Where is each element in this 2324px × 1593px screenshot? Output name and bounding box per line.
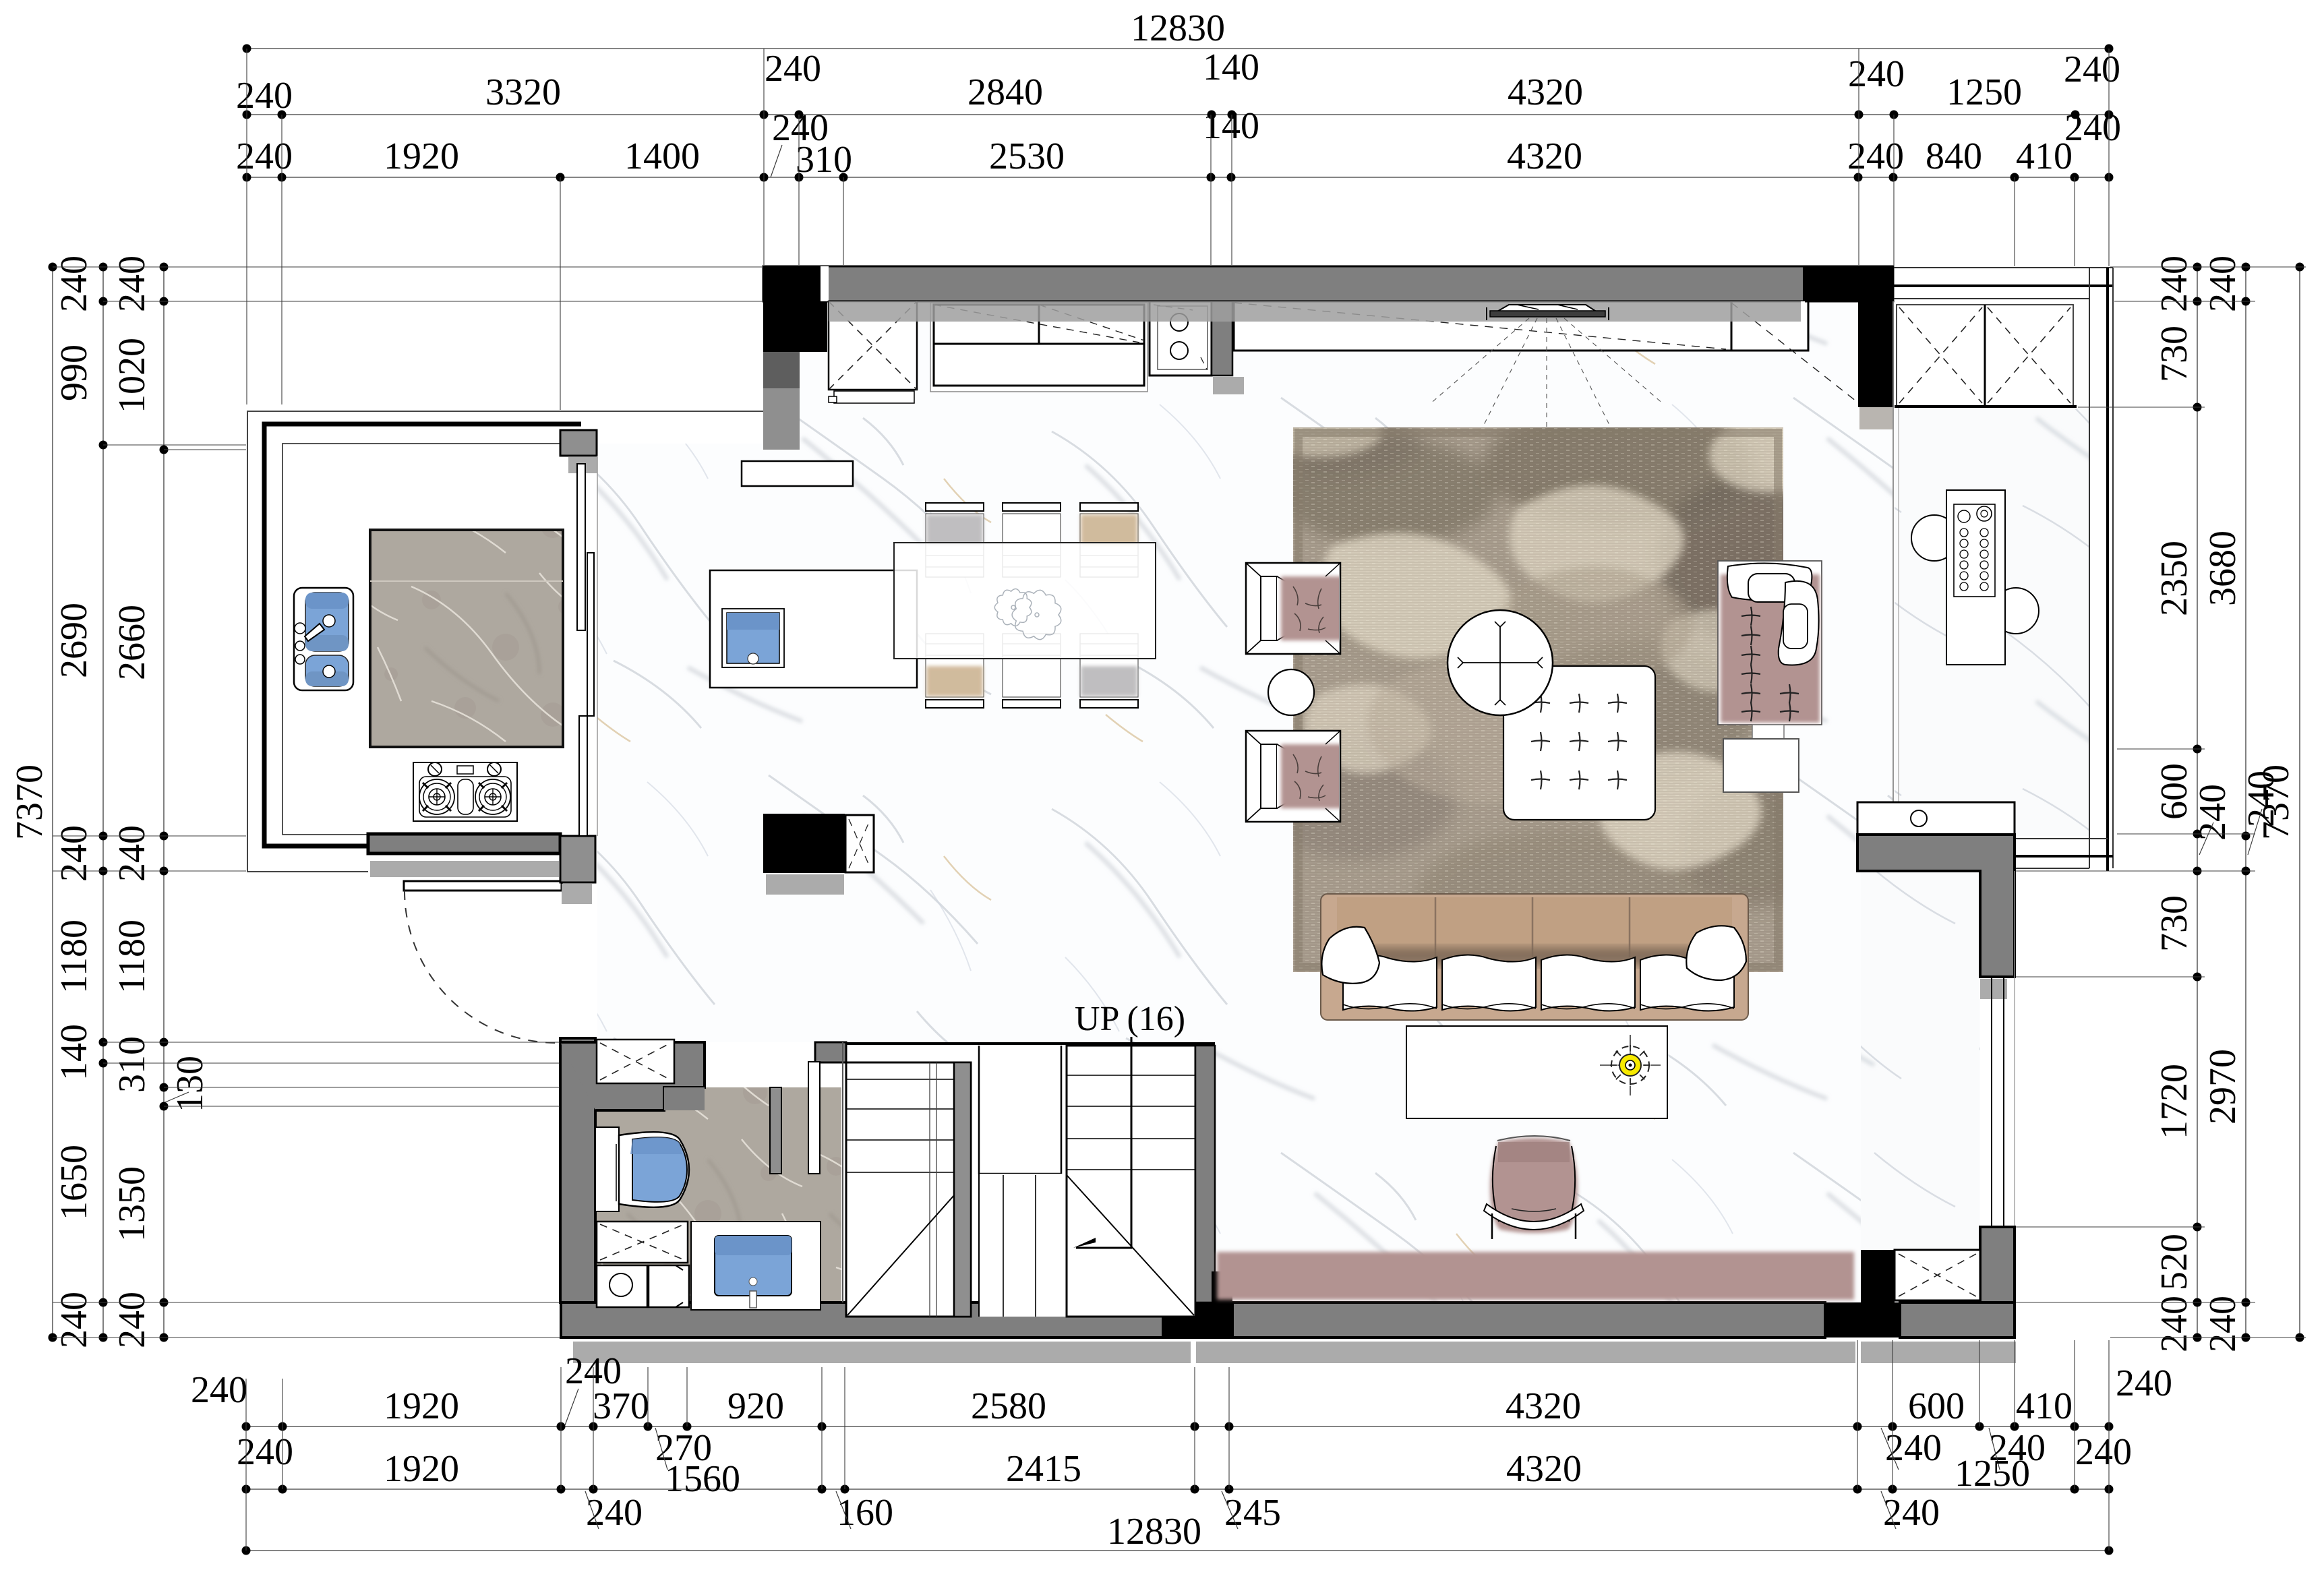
svg-text:240: 240: [2153, 1296, 2195, 1352]
svg-text:240: 240: [111, 825, 153, 882]
svg-text:240: 240: [53, 825, 95, 882]
svg-text:240: 240: [2064, 49, 2120, 90]
svg-text:310: 310: [111, 1036, 153, 1093]
svg-text:7370: 7370: [9, 764, 51, 840]
svg-text:990: 990: [53, 344, 95, 401]
svg-text:240: 240: [53, 1292, 95, 1348]
svg-text:1920: 1920: [384, 136, 459, 177]
svg-text:240: 240: [2075, 1431, 2132, 1473]
svg-text:3680: 3680: [2202, 531, 2244, 606]
svg-text:730: 730: [2153, 895, 2195, 952]
svg-text:240: 240: [111, 1292, 153, 1348]
svg-text:1250: 1250: [1955, 1453, 2030, 1495]
svg-text:840: 840: [1926, 136, 1982, 177]
svg-text:240: 240: [2202, 256, 2244, 312]
svg-text:140: 140: [1203, 47, 1259, 88]
svg-text:240: 240: [1883, 1492, 1940, 1534]
svg-text:3320: 3320: [485, 71, 561, 113]
svg-text:600: 600: [1908, 1385, 1965, 1427]
svg-text:160: 160: [837, 1492, 893, 1534]
svg-text:12830: 12830: [1131, 7, 1225, 49]
svg-text:1250: 1250: [1946, 71, 2022, 113]
svg-text:240: 240: [191, 1369, 247, 1411]
svg-text:730: 730: [2153, 326, 2195, 382]
svg-text:2350: 2350: [2153, 541, 2195, 616]
svg-text:240: 240: [53, 256, 95, 312]
svg-text:245: 245: [1224, 1492, 1281, 1534]
svg-text:4320: 4320: [1508, 71, 1583, 113]
svg-text:240: 240: [2153, 256, 2195, 312]
svg-text:240: 240: [2116, 1362, 2172, 1404]
svg-text:2690: 2690: [53, 603, 95, 678]
svg-text:240: 240: [1847, 136, 1904, 177]
svg-text:240: 240: [2202, 1296, 2244, 1352]
svg-text:1560: 1560: [665, 1458, 740, 1500]
svg-text:240: 240: [236, 136, 293, 177]
svg-text:140: 140: [1203, 105, 1259, 147]
svg-text:1350: 1350: [111, 1166, 153, 1242]
svg-text:2415: 2415: [1006, 1448, 1081, 1490]
svg-text:600: 600: [2153, 763, 2195, 820]
svg-text:2840: 2840: [967, 71, 1043, 113]
svg-text:240: 240: [2192, 784, 2234, 841]
svg-text:240: 240: [765, 48, 821, 90]
svg-text:240: 240: [1885, 1427, 1942, 1469]
svg-text:240: 240: [237, 1431, 293, 1473]
svg-text:240: 240: [2240, 771, 2282, 827]
svg-text:130: 130: [169, 1056, 211, 1112]
svg-text:2580: 2580: [971, 1385, 1046, 1427]
svg-text:4320: 4320: [1506, 1385, 1581, 1427]
svg-text:1180: 1180: [53, 920, 95, 994]
svg-text:1400: 1400: [624, 136, 700, 177]
svg-text:1180: 1180: [111, 920, 153, 994]
svg-text:1020: 1020: [111, 338, 153, 413]
svg-text:240: 240: [236, 75, 293, 117]
svg-text:240: 240: [586, 1492, 643, 1534]
svg-text:240: 240: [1848, 53, 1905, 95]
svg-text:240: 240: [2064, 107, 2121, 149]
svg-text:12830: 12830: [1107, 1511, 1201, 1553]
svg-text:4320: 4320: [1506, 1448, 1582, 1490]
svg-text:2660: 2660: [111, 605, 153, 680]
svg-text:410: 410: [2016, 1385, 2073, 1427]
svg-text:140: 140: [53, 1024, 95, 1081]
svg-text:240: 240: [111, 256, 153, 312]
svg-text:920: 920: [727, 1385, 784, 1427]
svg-text:310: 310: [796, 139, 852, 181]
svg-text:4320: 4320: [1507, 136, 1582, 177]
svg-text:1920: 1920: [384, 1448, 459, 1490]
svg-text:2970: 2970: [2202, 1049, 2244, 1124]
svg-text:1720: 1720: [2153, 1064, 2195, 1139]
svg-text:370: 370: [593, 1385, 649, 1427]
svg-text:1650: 1650: [53, 1145, 95, 1220]
svg-text:2530: 2530: [989, 136, 1065, 177]
svg-text:UP (16): UP (16): [1075, 1000, 1185, 1038]
svg-text:1920: 1920: [384, 1385, 459, 1427]
svg-text:520: 520: [2153, 1234, 2195, 1290]
